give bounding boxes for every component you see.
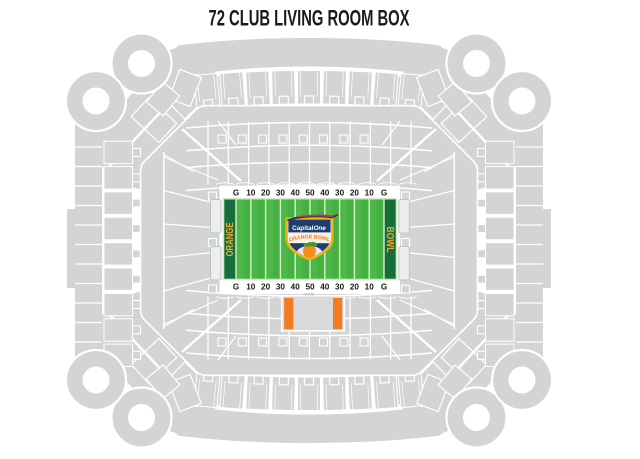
svg-text:40: 40 xyxy=(320,189,330,198)
svg-text:10: 10 xyxy=(246,189,256,198)
svg-text:G: G xyxy=(381,189,387,198)
svg-text:30: 30 xyxy=(276,283,286,292)
svg-text:CapitalOne: CapitalOne xyxy=(292,225,326,232)
svg-text:HOME: HOME xyxy=(304,292,315,296)
svg-text:ORANGE: ORANGE xyxy=(224,223,236,257)
svg-text:20: 20 xyxy=(350,189,360,198)
svg-text:50: 50 xyxy=(305,189,315,198)
svg-text:10: 10 xyxy=(246,283,256,292)
svg-text:G: G xyxy=(233,283,239,292)
svg-text:G: G xyxy=(233,189,239,198)
svg-text:72 CLUB LIVING ROOM BOX: 72 CLUB LIVING ROOM BOX xyxy=(209,5,410,30)
svg-text:30: 30 xyxy=(335,283,345,292)
svg-text:30: 30 xyxy=(335,189,345,198)
svg-text:40: 40 xyxy=(291,189,301,198)
svg-text:20: 20 xyxy=(350,283,360,292)
svg-text:BOWL: BOWL xyxy=(384,227,396,253)
svg-text:20: 20 xyxy=(261,283,271,292)
svg-text:50: 50 xyxy=(305,283,315,292)
svg-text:20: 20 xyxy=(261,189,271,198)
svg-text:40: 40 xyxy=(291,283,301,292)
svg-text:30: 30 xyxy=(276,189,286,198)
svg-text:40: 40 xyxy=(320,283,330,292)
svg-text:10: 10 xyxy=(365,283,375,292)
svg-text:G: G xyxy=(381,283,387,292)
svg-text:10: 10 xyxy=(365,189,375,198)
